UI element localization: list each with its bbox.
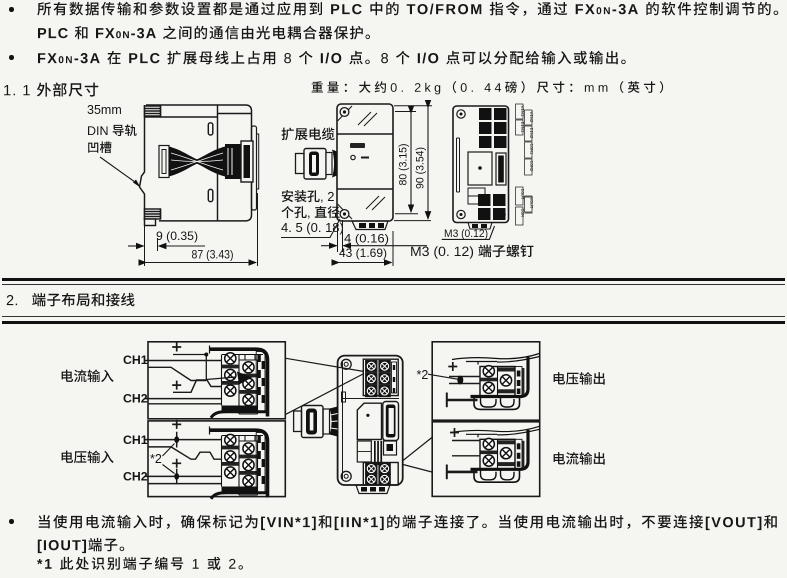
svg-text:4. 5 (0. 18): 4. 5 (0. 18) — [281, 220, 344, 235]
svg-text:IOUT: IOUT — [519, 189, 525, 200]
svg-text:35mm: 35mm — [87, 103, 122, 117]
svg-text:CH1: CH1 — [123, 433, 148, 447]
svg-text:VOUT: VOUT — [528, 198, 534, 209]
svg-text:CH1: CH1 — [123, 353, 148, 367]
svg-text:M3 (0.12): M3 (0.12) — [444, 228, 488, 240]
svg-text:*2: *2 — [417, 368, 429, 382]
svg-text:COM1: COM1 — [528, 144, 534, 155]
svg-text:80 (3.15): 80 (3.15) — [398, 144, 410, 186]
svg-text:VIN1: VIN1 — [519, 106, 525, 117]
svg-text:IIN2: IIN2 — [528, 128, 534, 139]
svg-text:87 (3.43): 87 (3.43) — [192, 248, 234, 262]
svg-text:9 (0.35): 9 (0.35) — [156, 229, 198, 243]
svg-text:COM2: COM2 — [528, 161, 534, 172]
svg-text:CH2: CH2 — [123, 469, 148, 483]
svg-text:COM: COM — [519, 209, 525, 218]
svg-text:4 (0.16): 4 (0.16) — [344, 232, 389, 246]
svg-text:IIN1: IIN1 — [519, 122, 525, 133]
svg-text:*2: *2 — [150, 452, 162, 466]
svg-text:43 (1.69): 43 (1.69) — [339, 246, 387, 260]
svg-text:CH2: CH2 — [123, 391, 148, 405]
svg-text:VIN2: VIN2 — [528, 112, 534, 123]
svg-text:90 (3.54): 90 (3.54) — [415, 147, 427, 189]
